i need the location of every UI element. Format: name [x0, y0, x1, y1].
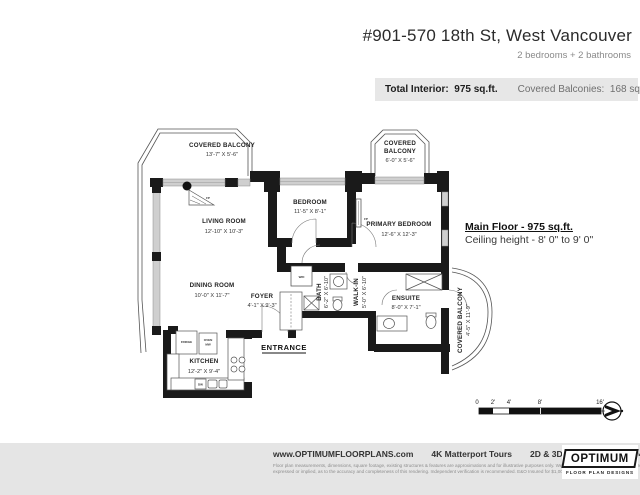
foyer-name: FOYER	[251, 293, 274, 300]
primary-bedroom-name: PRIMARY BEDROOM	[366, 221, 431, 228]
microwave-label: MW	[205, 343, 210, 347]
scale-tick-16: 16'	[596, 400, 604, 406]
bedroom-dims: 11'-5" X 8'-1"	[294, 209, 326, 215]
logo-name: OPTIMUM	[571, 453, 629, 465]
toilet-icon	[333, 300, 342, 311]
foyer-dims: 4'-1" X 9'-3"	[247, 303, 276, 309]
bath-name: BATH	[316, 283, 323, 301]
covered-balcony-top-dims: 6'-0" X 5'-6"	[385, 158, 414, 164]
stove-burner-icon	[231, 357, 237, 363]
stove-burner-icon	[231, 366, 237, 372]
scale-bar: 0 2' 4' 8' 16'	[475, 400, 604, 414]
stove-burner-icon	[239, 366, 245, 372]
logo-tagline: FLOOR PLAN DESIGNS	[566, 470, 634, 475]
stove-burner-icon	[239, 357, 245, 363]
floor-plan: FP FP W/D	[0, 0, 640, 495]
kitchen-sink-icon	[219, 380, 227, 388]
fireplace-label: FP	[206, 196, 210, 200]
footer-disclaimer: Floor plan measurements, dimensions, squ…	[273, 463, 603, 474]
covered-balcony-right-dims: 4'-5" X 11'-9"	[466, 304, 472, 336]
walk-in-dims: 5'-0" X 6'-10"	[362, 276, 368, 308]
walk-in-name: WALK-IN	[353, 278, 360, 306]
dining-room-dims: 10'-0" X 11'-7"	[195, 293, 230, 299]
living-room-dims: 12'-10" X 10'-3"	[205, 229, 243, 235]
covered-balcony-tl-dims: 13'-7" X 5'-6"	[206, 152, 238, 158]
dining-room-name: DINING ROOM	[190, 282, 235, 289]
ensuite-dims: 8'-0" X 7'-1"	[391, 305, 420, 311]
north-arrow-icon	[601, 402, 623, 420]
footer-matterport: 4K Matterport Tours	[431, 449, 512, 459]
fridge-label: FRIDGE	[181, 340, 192, 344]
oven-label: OVEN	[204, 338, 213, 342]
kitchen-sink-icon	[208, 380, 217, 388]
washer-dryer-icon: W/D	[291, 266, 312, 286]
dishwasher-label: DW	[198, 383, 203, 387]
kitchen-dims: 12'-2" X 9'-4"	[188, 369, 220, 375]
footer-band: www.OPTIMUMFLOORPLANS.com 4K Matterport …	[0, 443, 640, 495]
optimum-logo: OPTIMUM FLOOR PLAN DESIGNS	[562, 445, 638, 479]
bath-dims: 6'-2" X 6'-10"	[324, 276, 330, 308]
covered-balcony-right-name: COVERED BALCONY	[457, 286, 464, 353]
scale-tick-2: 2'	[491, 400, 495, 406]
living-room-name: LIVING ROOM	[202, 218, 246, 225]
logo-box: OPTIMUM	[561, 449, 638, 468]
covered-balcony-top-name2: BALCONY	[384, 148, 417, 155]
ensuite-fixtures	[377, 274, 442, 331]
entrance-label: ENTRANCE	[261, 343, 307, 352]
footer-website: www.OPTIMUMFLOORPLANS.com	[273, 449, 413, 459]
toilet2-icon	[426, 316, 436, 329]
ensuite-name: ENSUITE	[392, 295, 420, 302]
scale-tick-8: 8'	[538, 400, 542, 406]
washer-dryer-label: W/D	[299, 275, 306, 279]
scale-tick-0: 0	[475, 400, 479, 406]
covered-balcony-tl-name: COVERED BALCONY	[189, 142, 256, 149]
covered-balcony-top-name1: COVERED	[384, 140, 416, 147]
scale-tick-4: 4'	[507, 400, 511, 406]
kitchen-name: KITCHEN	[190, 358, 219, 365]
disclaimer-line1: Floor plan measurements, dimensions, squ…	[273, 463, 603, 469]
bedroom-name: BEDROOM	[293, 199, 327, 206]
sink2-icon	[384, 319, 395, 329]
foyer-closet	[280, 292, 302, 330]
primary-bedroom-dims: 12'-6" X 12'-3"	[381, 232, 416, 238]
disclaimer-line2: expressed or implied, as to the accuracy…	[273, 469, 603, 475]
